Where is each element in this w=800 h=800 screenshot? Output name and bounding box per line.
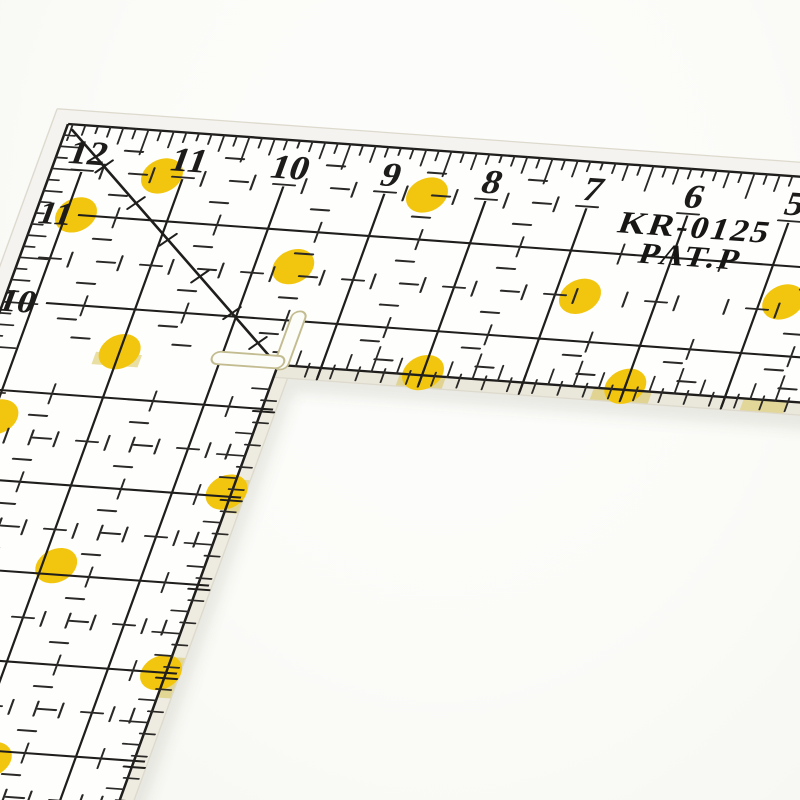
ruler-photo: 12 11 10 9 8 7 6 5 11 10 KR-0125 PAT.P	[0, 0, 800, 800]
quilting-ruler: 12 11 10 9 8 7 6 5 11 10 KR-0125 PAT.P	[0, 109, 800, 800]
ruler-illustration: 12 11 10 9 8 7 6 5 11 10 KR-0125 PAT.P	[0, 0, 800, 800]
